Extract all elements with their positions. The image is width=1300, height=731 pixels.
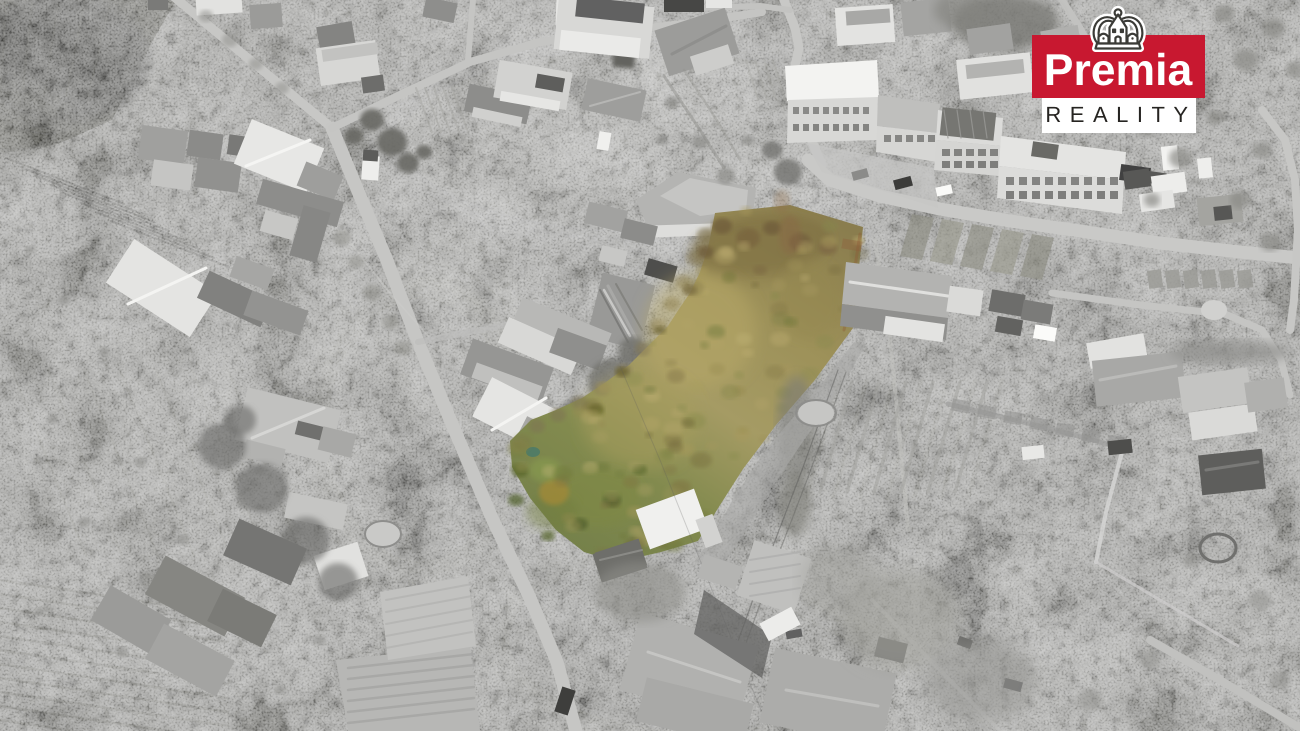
svg-text:REALITY: REALITY xyxy=(1045,102,1196,127)
svg-text:Premia: Premia xyxy=(1044,46,1194,95)
